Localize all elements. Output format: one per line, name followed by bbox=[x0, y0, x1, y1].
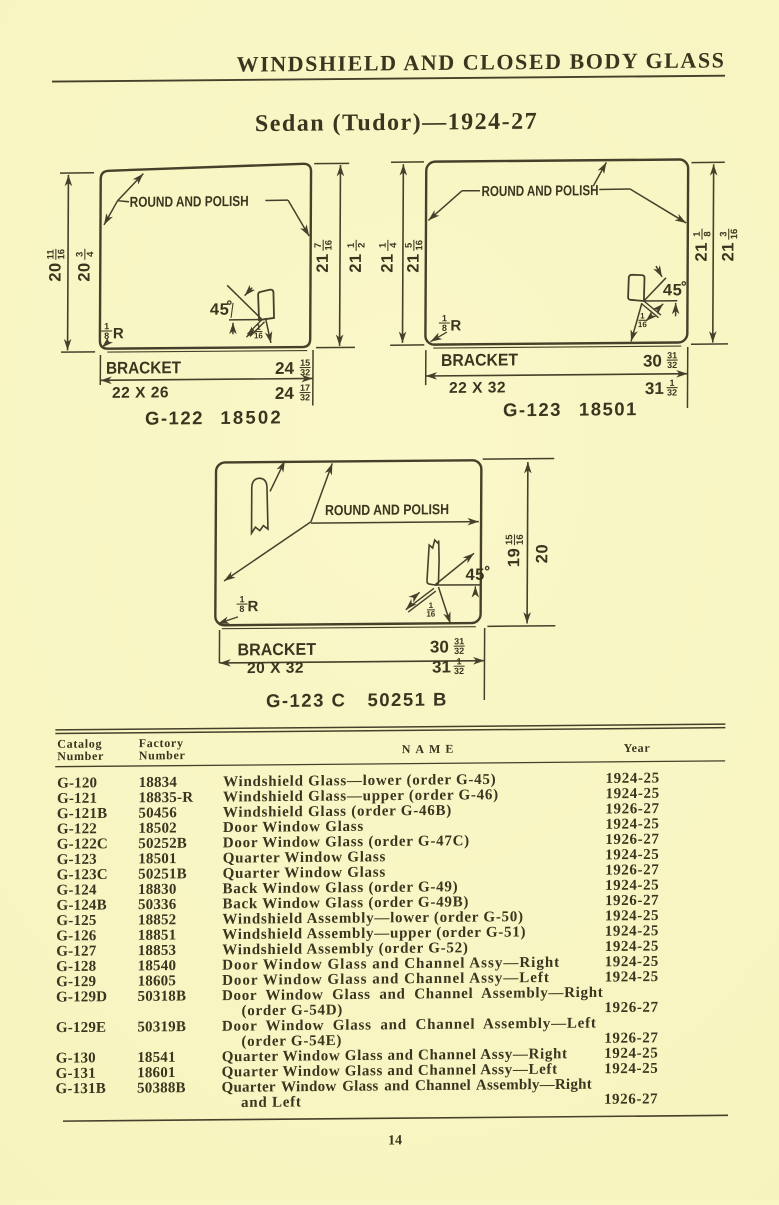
svg-text:24: 24 bbox=[275, 359, 295, 378]
svg-text:32: 32 bbox=[300, 392, 310, 402]
svg-text:1924-25: 1924-25 bbox=[605, 923, 659, 939]
svg-text:21: 21 bbox=[693, 242, 711, 262]
svg-text:Door Window Glass and Channel: Door Window Glass and Channel Assembly—L… bbox=[222, 1015, 597, 1034]
svg-text:32: 32 bbox=[667, 387, 677, 397]
svg-text:G-129: G-129 bbox=[56, 974, 96, 990]
svg-text:50318B: 50318B bbox=[137, 988, 186, 1004]
svg-text:15: 15 bbox=[504, 534, 515, 545]
svg-text:G-123C: G-123C bbox=[57, 867, 108, 883]
svg-text:1: 1 bbox=[104, 321, 109, 331]
svg-text:30: 30 bbox=[643, 351, 662, 370]
svg-text:18605: 18605 bbox=[138, 973, 177, 989]
svg-text:1924-25: 1924-25 bbox=[604, 1061, 658, 1077]
svg-text:32: 32 bbox=[300, 367, 310, 377]
svg-text:1924-25: 1924-25 bbox=[605, 847, 659, 863]
svg-text:22 X 32: 22 X 32 bbox=[449, 379, 506, 396]
svg-text:1924-25: 1924-25 bbox=[605, 969, 659, 985]
svg-text:R: R bbox=[113, 325, 124, 342]
svg-text:1924-25: 1924-25 bbox=[605, 877, 659, 893]
svg-text:G-120: G-120 bbox=[57, 775, 97, 791]
svg-text:5: 5 bbox=[404, 242, 415, 248]
svg-text:1924-25: 1924-25 bbox=[604, 1045, 658, 1061]
svg-text:14: 14 bbox=[388, 1133, 402, 1148]
svg-text:11: 11 bbox=[46, 249, 57, 260]
svg-text:3: 3 bbox=[718, 231, 729, 236]
svg-text:1924-25: 1924-25 bbox=[606, 770, 660, 786]
svg-text:1926-27: 1926-27 bbox=[604, 1030, 658, 1046]
svg-text:G-124B: G-124B bbox=[56, 897, 106, 913]
svg-text:1926-27: 1926-27 bbox=[605, 801, 659, 817]
svg-text:4: 4 bbox=[85, 251, 96, 257]
svg-text:Quarter Window Glass and Chann: Quarter Window Glass and Channel Assembl… bbox=[222, 1077, 592, 1096]
svg-text:1926-27: 1926-27 bbox=[604, 1000, 658, 1016]
svg-text:G-122: G-122 bbox=[145, 407, 204, 429]
svg-text:16: 16 bbox=[515, 534, 526, 545]
svg-text:45: 45 bbox=[663, 281, 682, 299]
svg-text:18851: 18851 bbox=[138, 927, 177, 943]
svg-text:21: 21 bbox=[379, 253, 397, 273]
svg-text:NAME: NAME bbox=[402, 742, 459, 756]
svg-text:G-129E: G-129E bbox=[56, 1020, 106, 1036]
svg-text:21: 21 bbox=[405, 253, 423, 273]
svg-text:8: 8 bbox=[239, 604, 244, 614]
svg-text:16: 16 bbox=[324, 240, 335, 251]
svg-text:1: 1 bbox=[378, 242, 389, 248]
svg-text:50456: 50456 bbox=[138, 805, 177, 821]
svg-text:16: 16 bbox=[254, 331, 263, 340]
svg-text:WINDSHIELD AND CLOSED BODY GLA: WINDSHIELD AND CLOSED BODY GLASS bbox=[237, 47, 726, 76]
svg-text:45: 45 bbox=[465, 566, 484, 584]
svg-text:31: 31 bbox=[667, 350, 677, 360]
svg-text:18601: 18601 bbox=[137, 1065, 176, 1081]
svg-text:18852: 18852 bbox=[138, 912, 177, 928]
svg-text:R: R bbox=[247, 598, 258, 615]
svg-text:R: R bbox=[450, 317, 461, 334]
svg-text:16: 16 bbox=[56, 249, 67, 260]
svg-text:ROUND AND POLISH: ROUND AND POLISH bbox=[325, 502, 449, 519]
svg-text:BRACKET: BRACKET bbox=[441, 350, 519, 370]
svg-text:G-126: G-126 bbox=[56, 928, 97, 944]
svg-text:32: 32 bbox=[454, 646, 464, 656]
svg-text:50251B: 50251B bbox=[138, 866, 187, 882]
svg-text:16: 16 bbox=[426, 610, 435, 619]
svg-text:1926-27: 1926-27 bbox=[605, 862, 659, 878]
svg-text:16: 16 bbox=[414, 240, 425, 251]
svg-text:50319B: 50319B bbox=[137, 1019, 186, 1035]
svg-text:G-122: G-122 bbox=[57, 821, 97, 837]
svg-text:8: 8 bbox=[104, 331, 109, 341]
svg-text:G-131: G-131 bbox=[56, 1066, 96, 1082]
svg-text:ROUND AND POLISH: ROUND AND POLISH bbox=[481, 183, 598, 200]
svg-text:1926-27: 1926-27 bbox=[604, 1091, 658, 1107]
svg-text:G-130: G-130 bbox=[56, 1050, 96, 1066]
svg-text:ROUND AND POLISH: ROUND AND POLISH bbox=[130, 194, 249, 211]
svg-text:G-123: G-123 bbox=[57, 852, 97, 868]
svg-text:G-124: G-124 bbox=[57, 882, 98, 898]
svg-text:18502: 18502 bbox=[138, 820, 177, 836]
svg-text:32: 32 bbox=[667, 360, 677, 370]
svg-text:G-123: G-123 bbox=[503, 399, 562, 421]
svg-text:50388B: 50388B bbox=[137, 1080, 186, 1096]
svg-text:45: 45 bbox=[210, 301, 229, 319]
svg-text:1926-27: 1926-27 bbox=[605, 832, 659, 848]
svg-text:Door Window Glass and Channel: Door Window Glass and Channel Assembly—R… bbox=[222, 985, 604, 1004]
svg-text:21: 21 bbox=[347, 253, 365, 273]
svg-text:50251 B: 50251 B bbox=[367, 688, 448, 710]
svg-text:G-128: G-128 bbox=[56, 959, 96, 975]
svg-text:22 X 26: 22 X 26 bbox=[112, 384, 169, 401]
svg-text:G-131B: G-131B bbox=[56, 1081, 106, 1097]
svg-text:18541: 18541 bbox=[137, 1050, 176, 1066]
svg-text:31: 31 bbox=[645, 379, 664, 398]
svg-text:30: 30 bbox=[430, 637, 449, 656]
svg-text:BRACKET: BRACKET bbox=[238, 640, 317, 660]
svg-text:1: 1 bbox=[670, 378, 675, 388]
svg-text:31: 31 bbox=[432, 657, 451, 676]
svg-text:Year: Year bbox=[624, 741, 651, 755]
svg-text:7: 7 bbox=[313, 243, 324, 248]
svg-text:1: 1 bbox=[346, 242, 357, 248]
svg-text:1: 1 bbox=[442, 313, 447, 323]
svg-text:1924-25: 1924-25 bbox=[605, 939, 659, 955]
svg-text:Number: Number bbox=[57, 749, 104, 763]
svg-text:and Left: and Left bbox=[241, 1094, 302, 1111]
svg-text:1924-25: 1924-25 bbox=[605, 786, 659, 802]
svg-text:Number: Number bbox=[139, 748, 186, 762]
svg-text:G-129D: G-129D bbox=[56, 989, 107, 1005]
svg-text:16: 16 bbox=[638, 320, 647, 329]
svg-text:1926-27: 1926-27 bbox=[605, 893, 659, 909]
svg-text:18540: 18540 bbox=[138, 958, 177, 974]
svg-text:1: 1 bbox=[457, 656, 462, 666]
svg-text:18830: 18830 bbox=[138, 882, 177, 898]
svg-text:18501: 18501 bbox=[579, 398, 638, 420]
svg-text:18853: 18853 bbox=[138, 943, 177, 959]
svg-text:1924-25: 1924-25 bbox=[605, 954, 659, 970]
svg-text:1924-25: 1924-25 bbox=[605, 908, 659, 924]
svg-text:G-121B: G-121B bbox=[57, 806, 107, 822]
svg-text:8: 8 bbox=[702, 231, 713, 236]
svg-text:2: 2 bbox=[357, 243, 368, 248]
svg-text:18834: 18834 bbox=[139, 775, 178, 791]
svg-text:32: 32 bbox=[454, 666, 464, 676]
svg-text:21: 21 bbox=[719, 242, 737, 262]
svg-text:19: 19 bbox=[505, 548, 523, 568]
svg-text:18835-R: 18835-R bbox=[138, 790, 193, 806]
svg-text:G-125: G-125 bbox=[56, 913, 96, 929]
svg-text:17: 17 bbox=[300, 383, 310, 393]
svg-text:20: 20 bbox=[47, 262, 65, 282]
svg-text:G-127: G-127 bbox=[56, 943, 97, 959]
svg-text:G-123 C: G-123 C bbox=[266, 689, 347, 711]
svg-text:20: 20 bbox=[533, 544, 551, 564]
svg-text:4: 4 bbox=[388, 242, 399, 248]
svg-text:8: 8 bbox=[442, 323, 447, 333]
svg-text:50336: 50336 bbox=[138, 897, 177, 913]
svg-text:Sedan (Tudor)—1924-27: Sedan (Tudor)—1924-27 bbox=[255, 109, 538, 137]
svg-text:BRACKET: BRACKET bbox=[106, 358, 182, 378]
svg-text:15: 15 bbox=[300, 358, 310, 368]
svg-text:18501: 18501 bbox=[138, 851, 177, 867]
svg-text:31: 31 bbox=[454, 636, 464, 646]
svg-text:1: 1 bbox=[692, 231, 703, 237]
svg-text:18502: 18502 bbox=[220, 406, 283, 428]
svg-text:16: 16 bbox=[729, 229, 740, 240]
svg-text:50252B: 50252B bbox=[138, 836, 187, 852]
svg-text:1: 1 bbox=[239, 594, 244, 604]
svg-text:(order G-54D): (order G-54D) bbox=[242, 1002, 344, 1019]
svg-text:24: 24 bbox=[275, 384, 295, 403]
svg-text:G-121: G-121 bbox=[57, 791, 97, 807]
svg-text:G-122C: G-122C bbox=[57, 836, 108, 852]
svg-text:21: 21 bbox=[314, 253, 332, 273]
svg-text:1924-25: 1924-25 bbox=[605, 816, 659, 832]
svg-text:20: 20 bbox=[76, 262, 94, 282]
svg-text:3: 3 bbox=[75, 252, 86, 257]
svg-text:20 X 32: 20 X 32 bbox=[247, 660, 304, 677]
